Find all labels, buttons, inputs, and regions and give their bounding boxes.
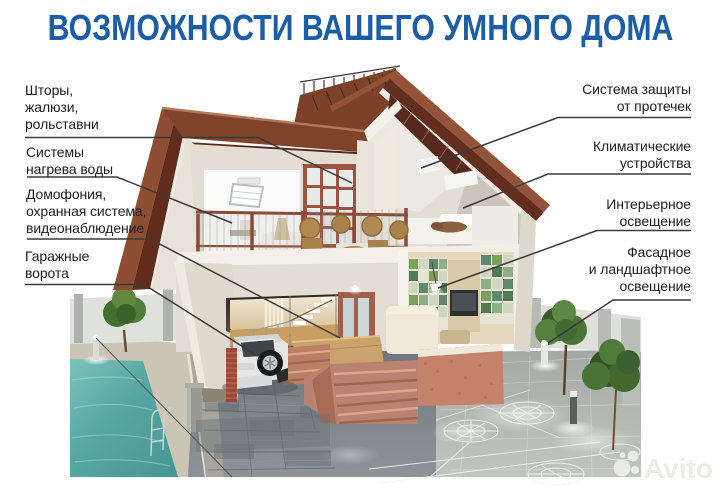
svg-text:Avito: Avito	[644, 453, 713, 484]
